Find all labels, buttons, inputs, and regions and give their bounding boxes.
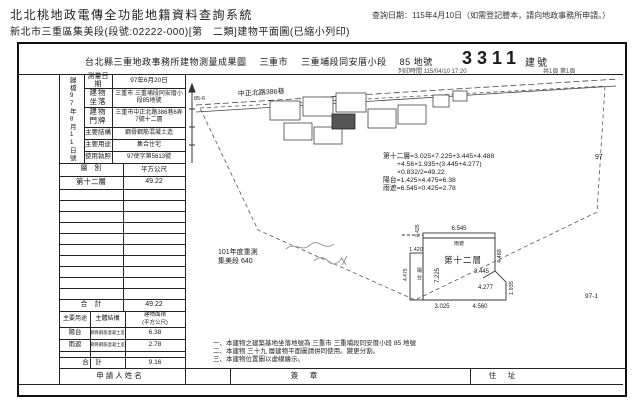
floor-total-value: 49.22 bbox=[123, 299, 185, 311]
office-title: 台北縣三重地政事務所建物測量成果圖 bbox=[85, 57, 247, 67]
footer-bottom-line bbox=[19, 384, 623, 385]
annex-structure: 鋼骨鋼筋混凝土造 bbox=[90, 339, 125, 351]
canopy-outline bbox=[423, 233, 495, 238]
row-line bbox=[59, 189, 185, 190]
dim-right: 4.488 bbox=[497, 249, 503, 263]
road-label: 中正北路386巷 bbox=[238, 86, 285, 98]
footer-divider bbox=[470, 368, 471, 384]
area-col-header: 平方公尺 bbox=[123, 163, 185, 176]
area-formula-block: 第十二層=3.025×7.225+3.445×4.488 +4.56×1.935… bbox=[383, 151, 494, 192]
info-label: 主要結構 bbox=[85, 127, 111, 139]
annex-structure-header: 主體結構 bbox=[90, 311, 125, 327]
dim-inner-vertical: 7.225 bbox=[435, 267, 441, 283]
info-label: 建物坐落 bbox=[86, 88, 110, 107]
dim-bottom-right: 4.560 bbox=[472, 304, 488, 310]
applicant-name-label: 申請人姓名 bbox=[80, 368, 160, 384]
floor-row-label: 第十二層 bbox=[59, 176, 123, 189]
annex-area: 2.78 bbox=[125, 339, 185, 351]
dim-inner-b: 4.277 bbox=[478, 285, 494, 291]
lot-label-85-6: 85-6 bbox=[194, 96, 205, 102]
info-label: 測量日期 bbox=[85, 74, 111, 88]
info-label: 使用執照 bbox=[85, 151, 111, 163]
info-value: 三重市 三重埔段同安厝小段85地號 bbox=[114, 88, 184, 107]
empty-row-line bbox=[59, 255, 185, 256]
empty-row-line bbox=[59, 277, 185, 278]
formula-line: +4.56×1.935+(3.445+4.277) bbox=[397, 161, 482, 168]
empty-row-line bbox=[59, 211, 185, 212]
cadastral-query-page: 北北桃地政電傳全功能地籍資料查詢系統 查詢日期：115年4月10日（如需登記謄本… bbox=[0, 0, 640, 407]
dim-canopy-height: 0.425 bbox=[415, 224, 421, 237]
floor-col-header: 層 別 bbox=[59, 163, 123, 176]
floor-total-label: 合 計 bbox=[59, 299, 123, 311]
info-value: 97使字第5613號 bbox=[114, 151, 184, 163]
handwritten-marks bbox=[286, 243, 347, 265]
dim-balcony-width: 1.420 bbox=[409, 247, 423, 253]
empty-row-line bbox=[59, 200, 185, 201]
formula-line: ×0.832/2=49.22 bbox=[397, 169, 445, 176]
building-number: 3311 bbox=[462, 48, 521, 69]
info-label: 建物門牌 bbox=[86, 107, 110, 127]
formula-line: 雨遮=6.545×0.425=2.78 bbox=[383, 183, 456, 192]
address-label: 住 址 bbox=[478, 368, 528, 384]
annex-use-header: 主要用途 bbox=[61, 311, 89, 327]
resurvey-annotation-line1: 101年度重測 bbox=[218, 247, 258, 256]
balcony-label: 陽台 bbox=[417, 267, 422, 281]
formula-line: 陽台=1.425×4.475=6.38 bbox=[383, 175, 456, 184]
empty-row-line bbox=[59, 266, 185, 267]
annex-structure: 鋼骨鋼筋混凝土造 bbox=[90, 327, 125, 339]
dim-inner-a: 3.445 bbox=[474, 269, 490, 275]
annex-use: 雨遮 bbox=[61, 339, 89, 351]
annex-total-label: 合 計 bbox=[59, 357, 125, 368]
lot-label-97-1: 97-1 bbox=[585, 293, 598, 300]
footer-divider bbox=[230, 368, 231, 384]
info-value: 集合住宅 bbox=[114, 139, 184, 151]
section-name: 三重埔段同安厝小段 bbox=[301, 57, 387, 67]
info-value: 三重市中正北路386巷6弄7號十二層 bbox=[114, 107, 184, 127]
info-label: 主要用途 bbox=[85, 139, 111, 151]
info-value: 鋼骨鋼筋混凝土造 bbox=[114, 127, 184, 139]
empty-row-line bbox=[59, 222, 185, 223]
annex-total-value: 9.16 bbox=[125, 357, 185, 368]
canopy-label: 雨遮 bbox=[454, 240, 464, 247]
resurvey-annotation-line2: 集美段 640 bbox=[218, 256, 253, 265]
info-value: 97年6月20日 bbox=[114, 74, 184, 88]
detail-floor-title: 第十二層 bbox=[444, 255, 482, 265]
formula-line: 第十二層=3.025×7.225+3.445×4.488 bbox=[383, 151, 494, 160]
empty-row-line bbox=[59, 233, 185, 234]
row-line bbox=[59, 351, 185, 352]
city-name: 三重市 bbox=[260, 57, 289, 67]
site-plan-drawing: 中正北路386巷 85-6 97 97-1 第十二層=3.025×7.225+3… bbox=[186, 75, 626, 365]
document-subtitle: 新北市三重區集美段(段號:02222-000)[第 二類]建物平面圖(已縮小列印… bbox=[10, 23, 350, 38]
annex-area-header-unit: (平方公尺) bbox=[125, 319, 185, 327]
dim-balcony-height: 4.475 bbox=[403, 268, 409, 281]
subject-building-footprint bbox=[332, 114, 355, 129]
annex-use: 陽台 bbox=[61, 327, 89, 339]
dim-bottom-left: 3.025 bbox=[434, 304, 450, 310]
lot-label-97: 97 bbox=[595, 154, 603, 161]
query-date: 查詢日期：115年4月10日（如需登記謄本，請向地政事務所申請。） bbox=[372, 10, 610, 21]
dim-tab: 1.935 bbox=[509, 281, 515, 295]
archive-date-vertical: 歸檔97年8月11日號 bbox=[60, 76, 83, 162]
seal-label: 簽 章 bbox=[280, 368, 330, 384]
survey-map-title: 台北縣三重地政事務所建物測量成果圖 三重市 三重埔段同安厝小段 85 地號 bbox=[85, 55, 443, 68]
empty-row-line bbox=[59, 288, 185, 289]
system-title: 北北桃地政電傳全功能地籍資料查詢系統 bbox=[10, 6, 253, 23]
empty-row-line bbox=[59, 244, 185, 245]
annex-area: 6.38 bbox=[125, 327, 185, 339]
floor-row-area: 49.22 bbox=[123, 176, 185, 189]
dim-top: 6.545 bbox=[451, 226, 467, 232]
